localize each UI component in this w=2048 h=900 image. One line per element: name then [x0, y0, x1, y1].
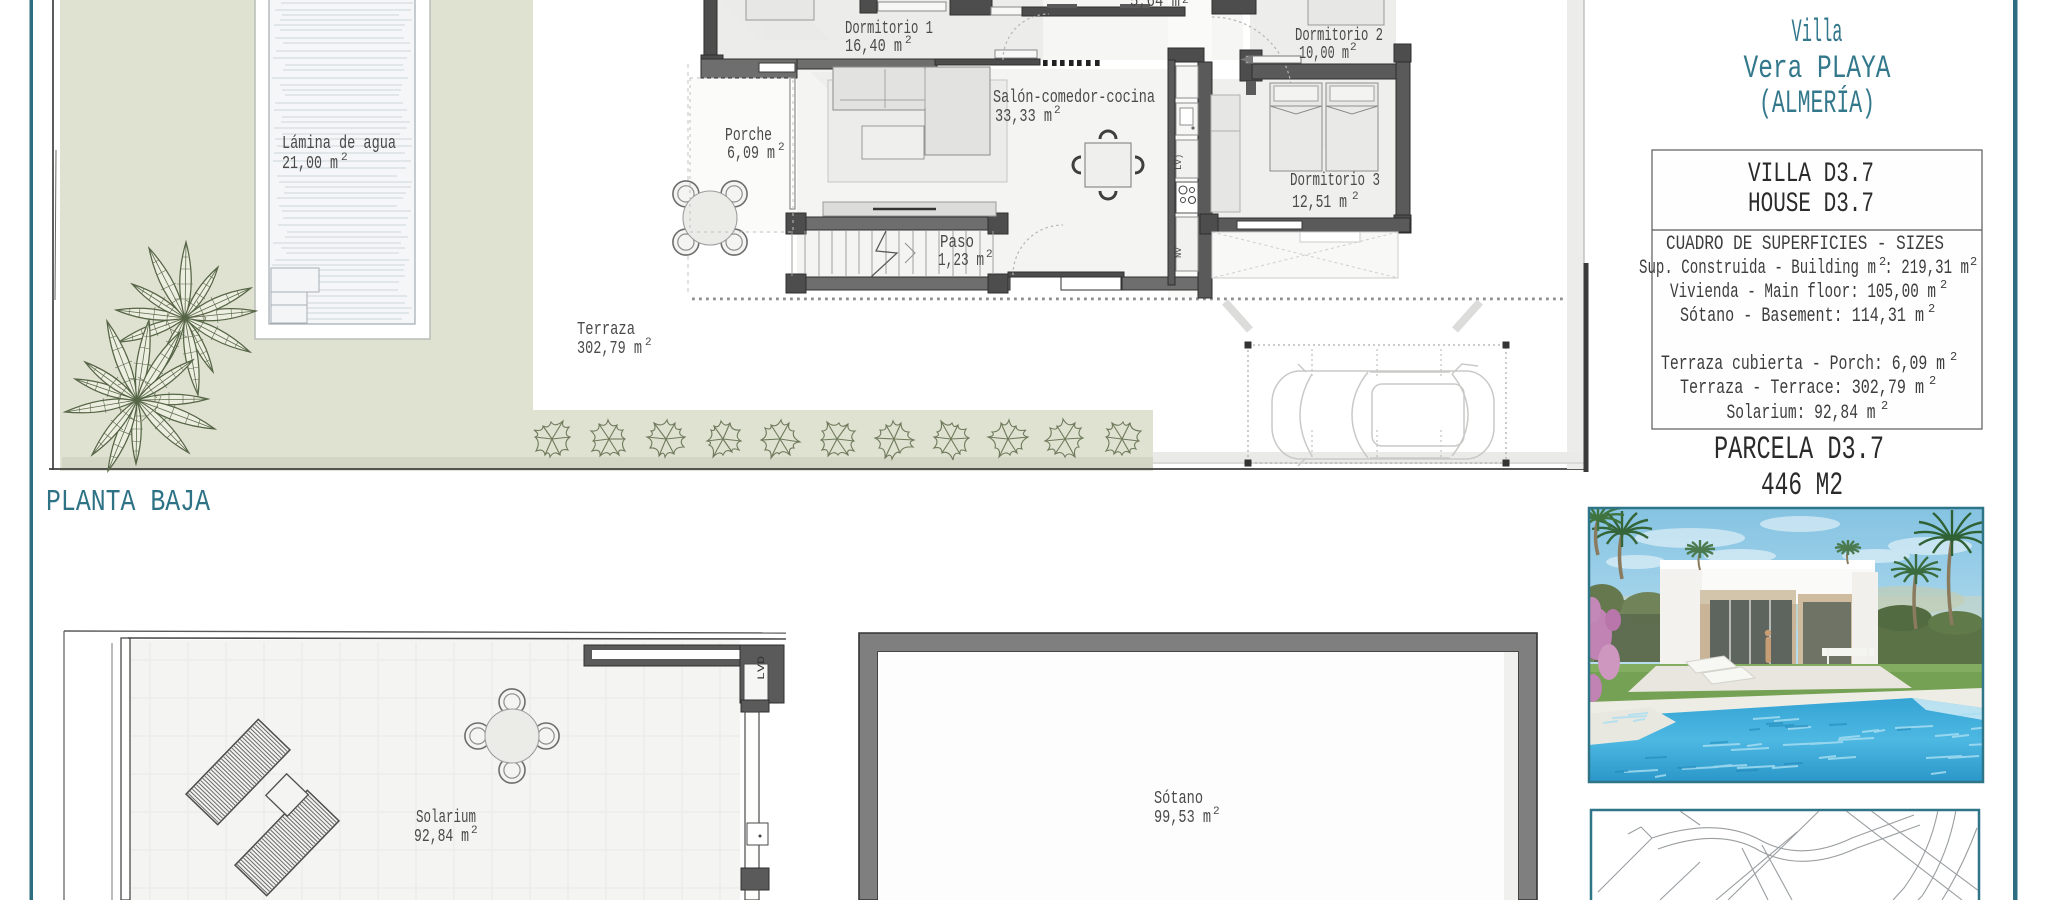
- svg-text:2: 2: [1970, 255, 1977, 269]
- svg-text:VILLA D3.7: VILLA D3.7: [1748, 159, 1874, 190]
- svg-text:2: 2: [1881, 399, 1888, 413]
- svg-text:5,64 m: 5,64 m: [1130, 0, 1180, 12]
- svg-text:Salón-comedor-cocina: Salón-comedor-cocina: [993, 88, 1155, 108]
- svg-text:2: 2: [1950, 350, 1957, 364]
- svg-text:HOUSE D3.7: HOUSE D3.7: [1748, 189, 1874, 220]
- svg-text:92,84 m: 92,84 m: [414, 827, 469, 847]
- svg-text:2: 2: [1940, 278, 1947, 292]
- svg-text:2: 2: [341, 152, 348, 164]
- svg-text:2: 2: [1213, 806, 1220, 818]
- svg-text:Solarium: 92,84 m: Solarium: 92,84 m: [1727, 402, 1876, 425]
- svg-text:2: 2: [1929, 374, 1936, 388]
- svg-text:(ALMERÍA): (ALMERÍA): [1759, 85, 1875, 122]
- svg-text:Terraza - Terrace: 302,79 m: Terraza - Terrace: 302,79 m: [1680, 377, 1924, 400]
- svg-text:Dormitorio 1: Dormitorio 1: [845, 19, 933, 39]
- svg-text:Terraza cubierta - Porch: 6,0: Terraza cubierta - Porch: 6,09 m: [1661, 353, 1945, 376]
- svg-text:Sótano: Sótano: [1154, 789, 1203, 809]
- svg-text:1,23 m: 1,23 m: [938, 251, 984, 271]
- svg-text:2: 2: [471, 825, 478, 837]
- svg-text:2: 2: [986, 249, 993, 261]
- svg-text:Terraza: Terraza: [577, 320, 635, 340]
- svg-text:21,00 m: 21,00 m: [282, 154, 338, 174]
- svg-text:Sup. Construida - Building m: Sup. Construida - Building m : 219,31 m: [1639, 257, 1969, 280]
- svg-text:12,51 m: 12,51 m: [1292, 193, 1347, 213]
- svg-text:302,79 m: 302,79 m: [577, 339, 642, 359]
- svg-text:2: 2: [905, 35, 912, 47]
- svg-text:2: 2: [645, 337, 652, 349]
- svg-text:Dormitorio 3: Dormitorio 3: [1290, 171, 1380, 191]
- svg-text:2: 2: [1879, 255, 1886, 269]
- svg-text:Villa: Villa: [1792, 14, 1843, 51]
- svg-text:Lámina de agua: Lámina de agua: [282, 134, 396, 154]
- svg-text:LV): LV): [1174, 154, 1184, 170]
- svg-text:2: 2: [1350, 42, 1357, 54]
- svg-text:NV: NV: [1174, 247, 1184, 258]
- svg-text:2: 2: [1928, 302, 1935, 316]
- svg-text:2: 2: [1054, 105, 1061, 117]
- svg-text:PARCELA D3.7: PARCELA D3.7: [1714, 431, 1884, 468]
- svg-text:2: 2: [1352, 191, 1359, 203]
- svg-text:LVD: LVD: [757, 656, 768, 680]
- svg-text:CUADRO DE SUPERFICIES - SIZES: CUADRO DE SUPERFICIES - SIZES: [1666, 233, 1944, 256]
- svg-text:Dormitorio 2: Dormitorio 2: [1295, 26, 1383, 46]
- svg-text:99,53 m: 99,53 m: [1154, 808, 1211, 828]
- svg-text:Paso: Paso: [940, 233, 974, 253]
- svg-text:Vera PLAYA: Vera PLAYA: [1744, 50, 1892, 87]
- svg-text:446 M2: 446 M2: [1761, 467, 1843, 504]
- svg-text:16,40 m: 16,40 m: [845, 37, 902, 57]
- svg-text:Vivienda - Main floor: 105,0: Vivienda - Main floor: 105,00 m: [1670, 281, 1936, 304]
- svg-text:Sótano - Basement: 114,31 m: Sótano - Basement: 114,31 m: [1680, 305, 1924, 328]
- svg-text:Porche: Porche: [725, 126, 772, 146]
- svg-text:2: 2: [778, 142, 785, 154]
- svg-text:Solarium: Solarium: [416, 808, 476, 828]
- svg-text:PLANTA BAJA: PLANTA BAJA: [46, 485, 210, 520]
- svg-text:2: 2: [1182, 0, 1189, 7]
- svg-text:33,33 m: 33,33 m: [995, 107, 1052, 127]
- svg-text:10,00 m: 10,00 m: [1299, 44, 1349, 64]
- svg-text:6,09 m: 6,09 m: [727, 144, 775, 164]
